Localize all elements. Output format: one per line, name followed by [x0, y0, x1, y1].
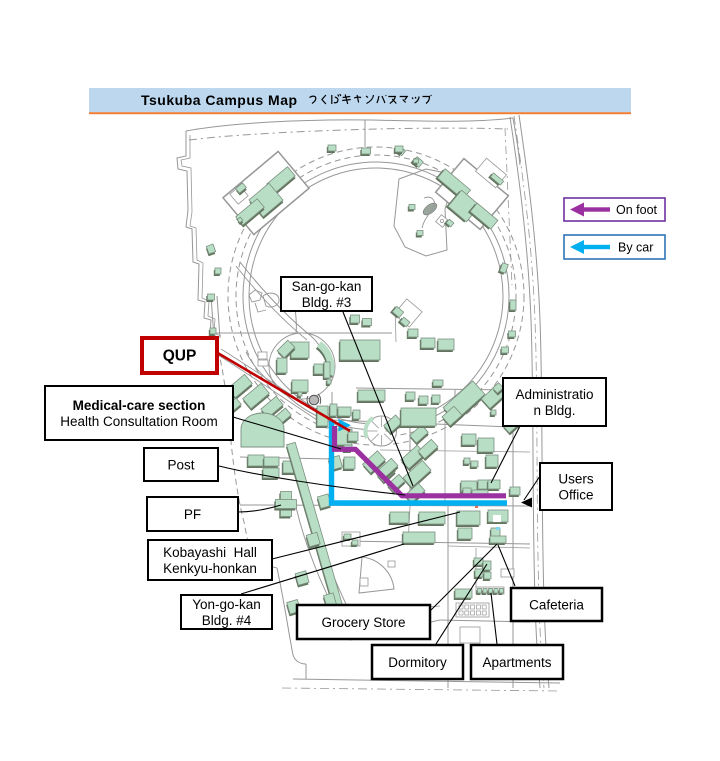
svg-text:QUP: QUP — [163, 347, 197, 364]
svg-text:Health Consultation Room: Health Consultation Room — [60, 414, 218, 429]
svg-text:Cafeteria: Cafeteria — [529, 597, 584, 612]
svg-text:Post: Post — [167, 457, 194, 472]
svg-text:Administratio: Administratio — [515, 387, 593, 402]
svg-text:By car: By car — [618, 241, 653, 255]
svg-text:Medical-care section: Medical-care section — [73, 398, 206, 413]
svg-text:Users: Users — [558, 471, 594, 486]
svg-text:On foot: On foot — [616, 203, 658, 217]
svg-text:PF: PF — [184, 507, 201, 522]
svg-text:n Bldg.: n Bldg. — [533, 403, 575, 418]
svg-text:San-go-kan: San-go-kan — [292, 279, 362, 294]
svg-text:Bldg. #4: Bldg. #4 — [202, 613, 252, 628]
svg-text:Kobayashi Hall: Kobayashi Hall — [163, 545, 257, 560]
svg-text:Kenkyu-honkan: Kenkyu-honkan — [163, 561, 257, 576]
svg-text:Grocery Store: Grocery Store — [321, 615, 405, 630]
svg-text:Office: Office — [558, 487, 593, 502]
svg-text:Dormitory: Dormitory — [388, 655, 447, 670]
svg-text:Tsukuba Campus Map: Tsukuba Campus Map — [141, 92, 298, 108]
svg-text:Apartments: Apartments — [482, 655, 551, 670]
svg-text:Yon-go-kan: Yon-go-kan — [192, 597, 261, 612]
svg-text:Bldg. #3: Bldg. #3 — [302, 295, 352, 310]
